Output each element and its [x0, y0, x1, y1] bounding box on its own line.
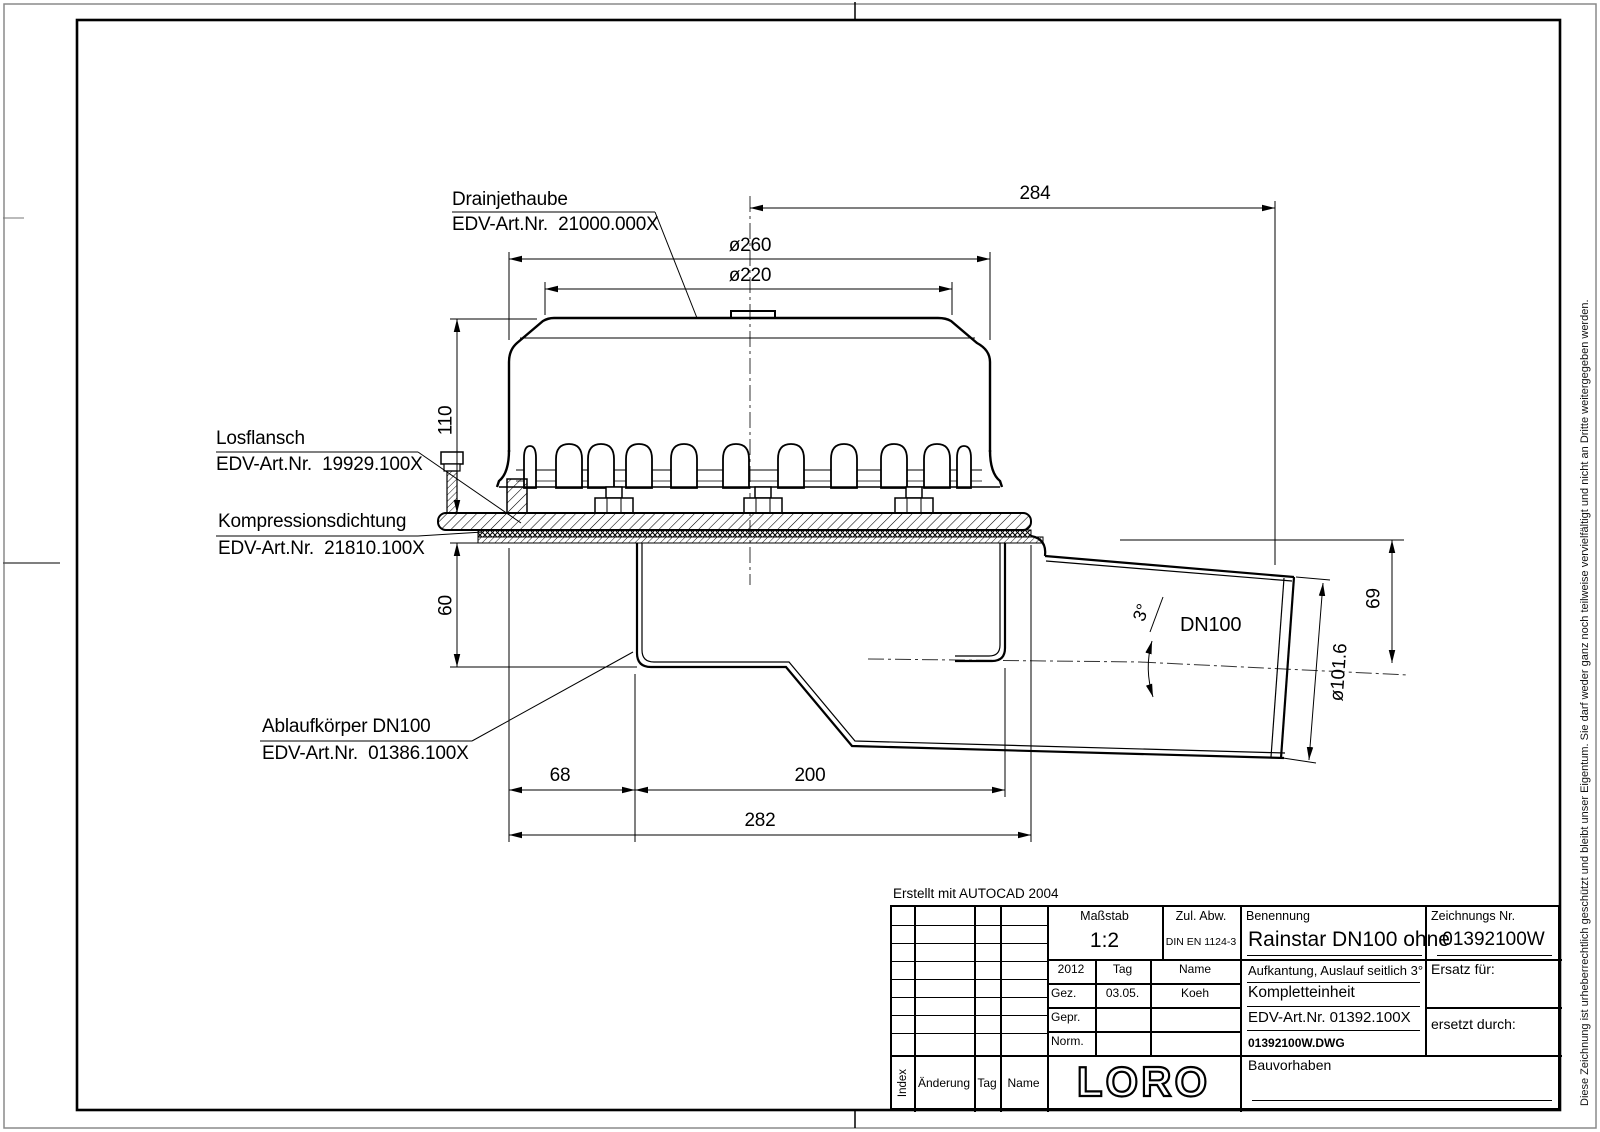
desc-line2: Kompletteinheit: [1248, 985, 1355, 1001]
compression-gasket: [478, 530, 1031, 537]
aenderung-label: Änderung: [914, 1077, 974, 1090]
zul-abw-value: DIN EN 1124-3: [1162, 937, 1240, 948]
tag-label: Tag: [974, 1077, 1000, 1090]
drain-body: [637, 536, 1294, 758]
title-block: Maßstab 1:2 Zul. Abw. DIN EN 1124-3 Bene…: [890, 905, 1560, 1110]
centerlines: [750, 196, 1408, 675]
label-losflansch-partno: EDV-Art.Nr. 19929.100X: [216, 455, 423, 476]
zeichnungs-nr-value: 01392100W: [1425, 930, 1562, 950]
label-kompressionsdichtung: Kompressionsdichtung: [218, 512, 406, 533]
dim-60: 60: [437, 575, 458, 635]
rev-name-header: Name: [1150, 963, 1240, 976]
dim-69: 69: [1365, 568, 1386, 628]
desc-line1: Aufkantung, Auslauf seitlich 3°: [1248, 964, 1423, 978]
dim-68: 68: [535, 766, 585, 787]
gez-name: Koeh: [1150, 987, 1240, 1000]
dim-282: 282: [730, 811, 790, 832]
drawing-sheet: { "drawing_labels": { "drainjethaube": {…: [0, 0, 1600, 1132]
name-label: Name: [1000, 1077, 1047, 1090]
gepr-label: Gepr.: [1051, 1011, 1080, 1024]
benennung-value: Rainstar DN100 ohne: [1248, 929, 1450, 951]
desc-line3: EDV-Art.Nr. 01392.100X: [1248, 1010, 1411, 1026]
index-label: Index: [897, 1058, 909, 1108]
clamp-bolt: [441, 452, 527, 513]
zul-abw-label: Zul. Abw.: [1162, 910, 1240, 923]
benennung-label: Benennung: [1246, 910, 1310, 923]
masstab-value: 1:2: [1047, 930, 1162, 952]
zeichnungs-nr-label: Zeichnungs Nr.: [1431, 910, 1515, 923]
dim-284: 284: [985, 184, 1085, 205]
dim-260: ø260: [700, 236, 800, 257]
flange-bolts: [591, 487, 937, 513]
label-kompressionsdichtung-partno: EDV-Art.Nr. 21810.100X: [218, 539, 425, 560]
dim-200: 200: [780, 766, 840, 787]
ersetzt-label: ersetzt durch:: [1431, 1017, 1516, 1032]
rev-tag-header: Tag: [1095, 963, 1150, 976]
gez-date: 03.05.: [1095, 987, 1150, 1000]
desc-line4: 01392100W.DWG: [1248, 1037, 1345, 1050]
flange-stack: [438, 513, 1043, 543]
label-drainjethaube-partno: EDV-Art.Nr. 21000.000X: [452, 215, 659, 236]
masstab-label: Maßstab: [1047, 910, 1162, 923]
ersatz-label: Ersatz für:: [1431, 962, 1495, 977]
label-ablaufkoerper-partno: EDV-Art.Nr. 01386.100X: [262, 744, 469, 765]
norm-label: Norm.: [1051, 1035, 1084, 1048]
label-ablaufkoerper: Ablaufkörper DN100: [262, 717, 431, 738]
label-dn100: DN100: [1180, 614, 1241, 636]
dim-110: 110: [437, 390, 458, 450]
dim-220: ø220: [700, 266, 800, 287]
hood-slots: [524, 444, 971, 488]
copyright-notice: Diese Zeichnung ist urheberrechtlich ges…: [1579, 301, 1591, 1106]
label-drainjethaube: Drainjethaube: [452, 190, 568, 211]
label-losflansch: Losflansch: [216, 429, 305, 450]
roof-membrane: [478, 537, 1043, 543]
loro-logo: LORO: [1047, 1060, 1240, 1104]
created-with-note: Erstellt mit AUTOCAD 2004: [893, 886, 1059, 901]
bauvorhaben-label: Bauvorhaben: [1248, 1058, 1331, 1073]
gez-label: Gez.: [1051, 987, 1076, 1000]
rev-year: 2012: [1047, 963, 1095, 976]
